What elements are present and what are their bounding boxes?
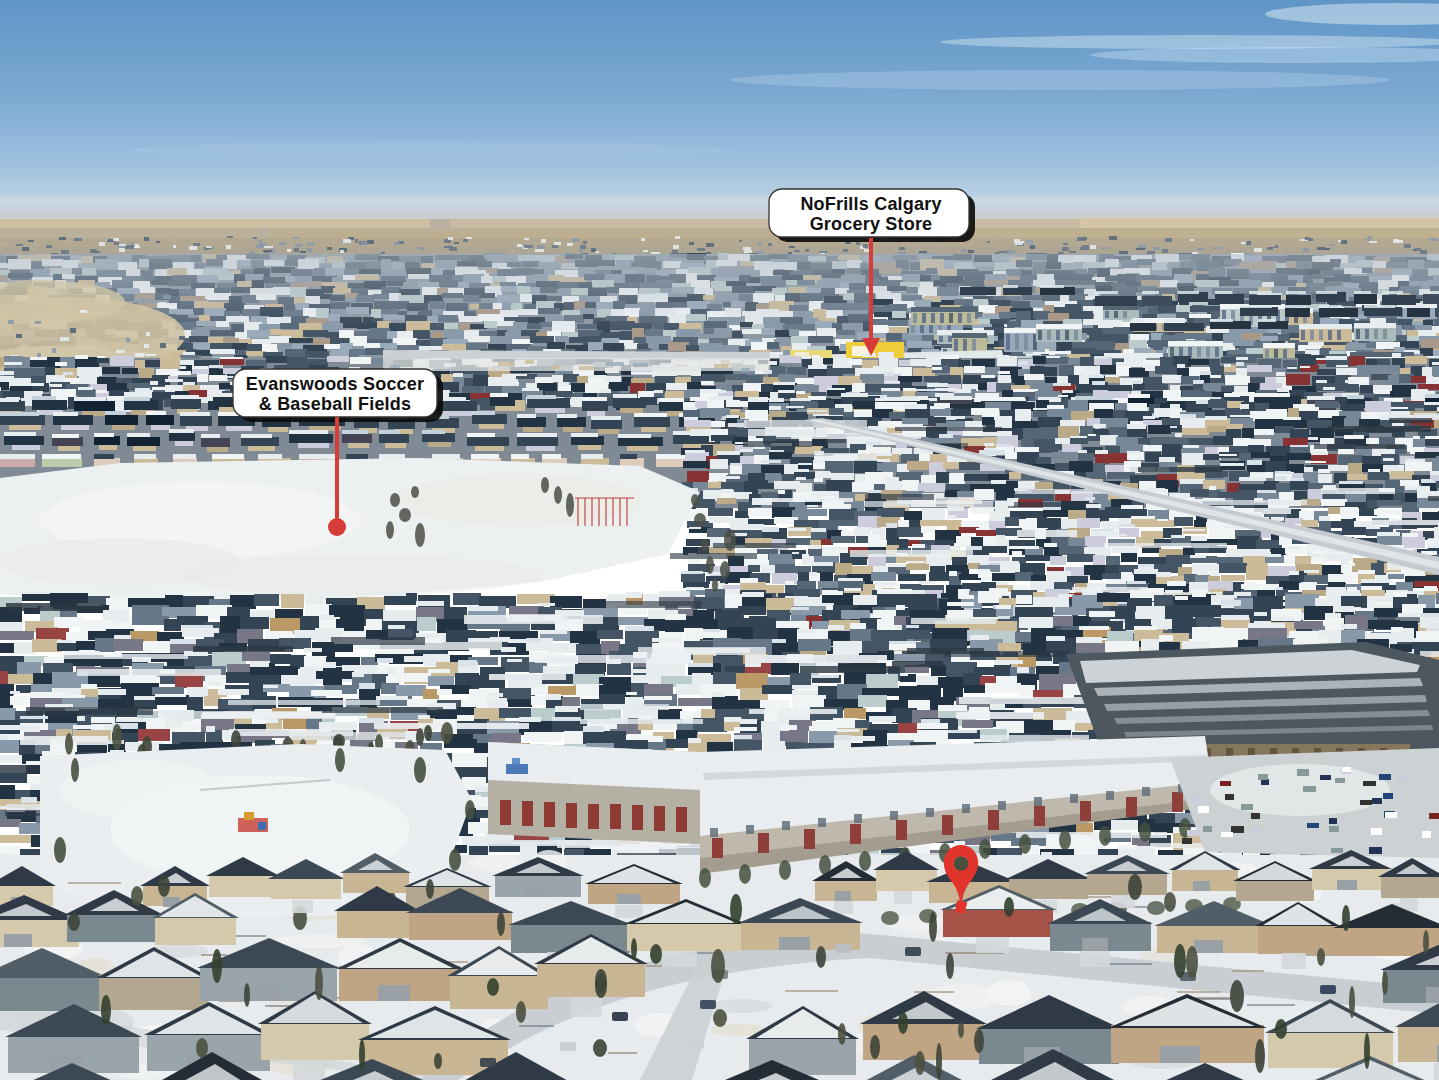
svg-text:Evanswoods Soccer: Evanswoods Soccer — [246, 374, 424, 394]
svg-text:NoFrills Calgary: NoFrills Calgary — [800, 194, 941, 214]
svg-text:Grocery Store: Grocery Store — [810, 214, 933, 234]
svg-text:& Baseball Fields: & Baseball Fields — [259, 394, 411, 414]
